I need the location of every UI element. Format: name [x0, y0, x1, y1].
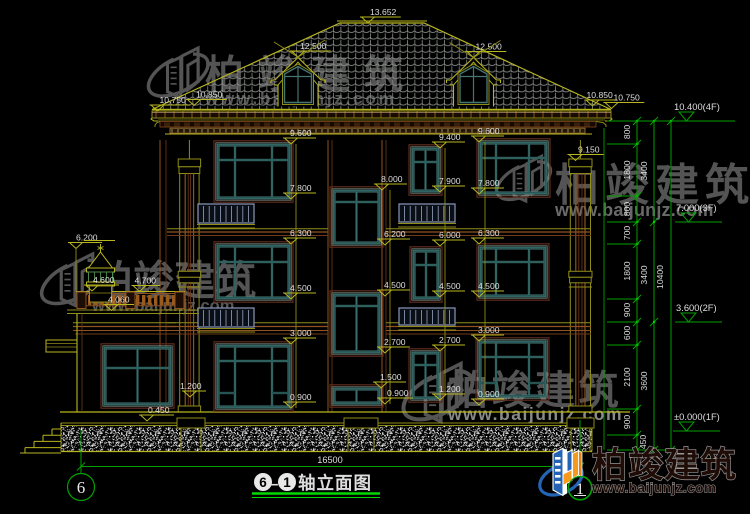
svg-text:±0.000(1F): ±0.000(1F) — [674, 411, 720, 422]
svg-text:1.200: 1.200 — [180, 381, 202, 391]
svg-text:7.800: 7.800 — [478, 178, 500, 188]
svg-text:6.300: 6.300 — [290, 228, 312, 238]
svg-text:3.000: 3.000 — [478, 325, 500, 335]
svg-text:www.baijunjz.com: www.baijunjz.com — [591, 481, 717, 496]
svg-text:1800: 1800 — [622, 160, 632, 179]
svg-text:10400: 10400 — [655, 265, 665, 289]
svg-text:1.500: 1.500 — [380, 372, 402, 382]
svg-text:柏竣建筑: 柏竣建筑 — [592, 445, 737, 485]
svg-text:4.500: 4.500 — [478, 281, 500, 291]
svg-text:6.300: 6.300 — [478, 228, 500, 238]
svg-text:1: 1 — [283, 475, 291, 490]
svg-text:–: – — [270, 476, 279, 493]
svg-text:13.652: 13.652 — [370, 7, 397, 17]
svg-text:10.400(4F): 10.400(4F) — [674, 101, 720, 112]
svg-text:12.500: 12.500 — [476, 42, 503, 52]
svg-text:10.850: 10.850 — [196, 90, 223, 100]
svg-text:9.400: 9.400 — [439, 132, 461, 142]
svg-text:6: 6 — [259, 475, 267, 490]
svg-text:700: 700 — [622, 226, 632, 241]
svg-text:4.500: 4.500 — [384, 280, 406, 290]
svg-text:www.baijunjz.com: www.baijunjz.com — [447, 404, 623, 424]
svg-text:1.200: 1.200 — [439, 384, 461, 394]
svg-text:0.900: 0.900 — [290, 392, 312, 402]
svg-text:10.750: 10.750 — [160, 95, 187, 105]
svg-text:4.600: 4.600 — [93, 275, 115, 285]
svg-text:900: 900 — [622, 415, 632, 430]
svg-text:1800: 1800 — [622, 261, 632, 280]
svg-text:0.900: 0.900 — [387, 388, 409, 398]
svg-text:800: 800 — [622, 125, 632, 140]
svg-text:600: 600 — [622, 326, 632, 341]
svg-text:4.500: 4.500 — [290, 283, 312, 293]
svg-text:4.700: 4.700 — [135, 276, 157, 286]
svg-text:3400: 3400 — [639, 265, 649, 284]
svg-text:7.000(3F): 7.000(3F) — [676, 202, 717, 213]
svg-text:3.000: 3.000 — [290, 328, 312, 338]
svg-text:9.150: 9.150 — [578, 145, 600, 155]
svg-text:6: 6 — [77, 478, 86, 497]
svg-text:7.800: 7.800 — [290, 183, 312, 193]
svg-text:4.060: 4.060 — [108, 295, 130, 305]
svg-text:4.500: 4.500 — [439, 281, 461, 291]
svg-text:16500: 16500 — [317, 455, 343, 465]
svg-text:6.200: 6.200 — [384, 229, 406, 239]
svg-text:3.600(2F): 3.600(2F) — [676, 302, 717, 313]
svg-text:900: 900 — [622, 303, 632, 318]
svg-text:7.900: 7.900 — [439, 176, 461, 186]
svg-text:10.850: 10.850 — [587, 90, 614, 100]
svg-text:800: 800 — [622, 202, 632, 217]
svg-text:6.000: 6.000 — [439, 230, 461, 240]
svg-text:0.900: 0.900 — [478, 389, 500, 399]
svg-text:2.700: 2.700 — [384, 337, 406, 347]
svg-text:0.450: 0.450 — [148, 405, 170, 415]
svg-text:3600: 3600 — [639, 371, 649, 390]
svg-text:9.600: 9.600 — [290, 128, 312, 138]
svg-text:9.600: 9.600 — [478, 126, 500, 136]
svg-text:2100: 2100 — [622, 367, 632, 386]
svg-text:10.750: 10.750 — [614, 93, 641, 103]
svg-text:3400: 3400 — [639, 161, 649, 180]
svg-text:12.500: 12.500 — [300, 41, 327, 51]
svg-text:8.000: 8.000 — [381, 174, 403, 184]
svg-text:2.700: 2.700 — [439, 335, 461, 345]
svg-text:轴立面图: 轴立面图 — [298, 473, 372, 493]
